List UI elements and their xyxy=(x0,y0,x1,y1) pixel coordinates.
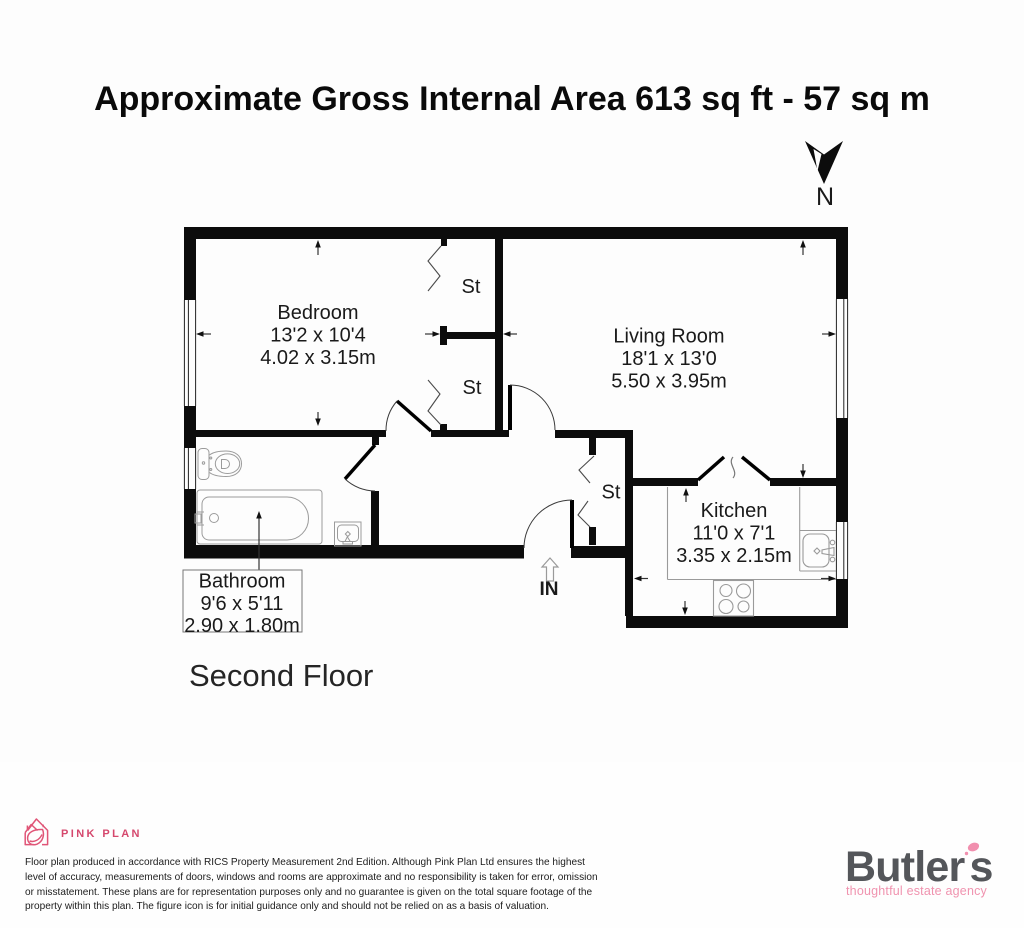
svg-text:5.50 x 3.95m: 5.50 x 3.95m xyxy=(611,371,727,393)
svg-text:13'2 x 10'4: 13'2 x 10'4 xyxy=(270,325,366,347)
svg-text:18'1 x 13'0: 18'1 x 13'0 xyxy=(621,348,717,370)
svg-text:St: St xyxy=(602,482,621,504)
svg-text:Bedroom: Bedroom xyxy=(277,302,358,324)
svg-text:11'0 x 7'1: 11'0 x 7'1 xyxy=(693,523,776,545)
svg-text:N: N xyxy=(816,183,834,211)
svg-text:St: St xyxy=(462,276,481,298)
svg-text:9'6 x 5'11: 9'6 x 5'11 xyxy=(201,593,284,615)
svg-text:3.35 x 2.15m: 3.35 x 2.15m xyxy=(676,545,792,567)
svg-text:4.02 x 3.15m: 4.02 x 3.15m xyxy=(260,347,376,369)
svg-text:2.90 x 1.80m: 2.90 x 1.80m xyxy=(184,615,300,637)
svg-text:Living Room: Living Room xyxy=(613,326,724,348)
svg-text:St: St xyxy=(463,377,482,399)
svg-text:IN: IN xyxy=(540,579,559,600)
svg-text:Bathroom: Bathroom xyxy=(199,571,286,593)
svg-text:Kitchen: Kitchen xyxy=(701,500,768,522)
